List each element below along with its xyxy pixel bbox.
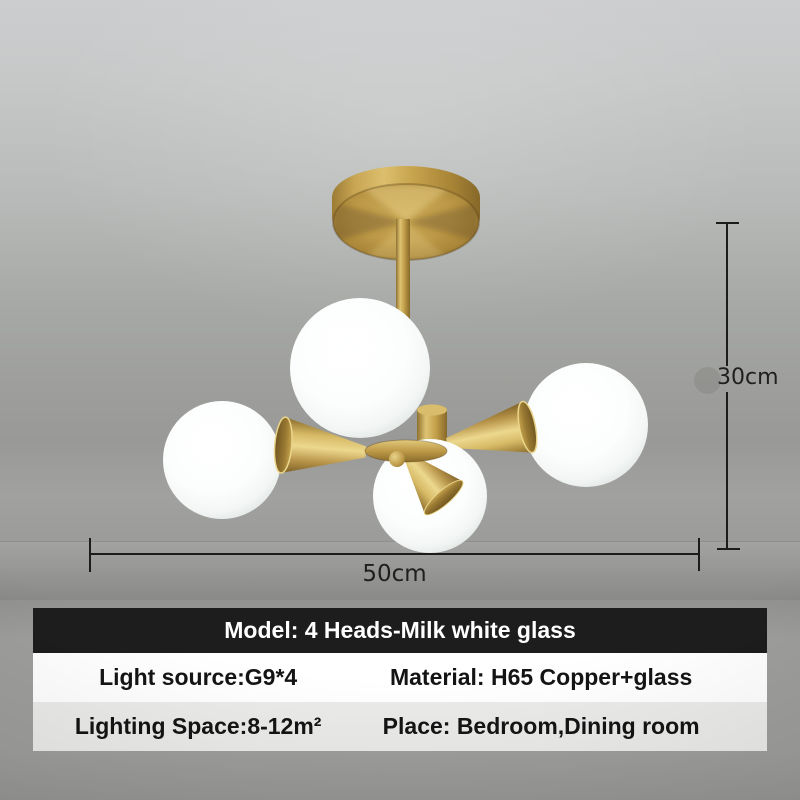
spec-table-row: Lighting Space:8-12m² Place: Bedroom,Din… [33, 702, 767, 751]
spec-lighting-space: Lighting Space:8-12m² [33, 713, 363, 740]
spec-table-row: Light source:G9*4 Material: H65 Copper+g… [33, 653, 767, 702]
height-dimension-line-lower [726, 392, 728, 549]
hub-disc [365, 440, 447, 462]
glass-globe-right [524, 363, 648, 487]
height-dimension-label: 30cm [717, 367, 779, 389]
glass-globe-left [163, 401, 281, 519]
height-dimension-tick-bottom [717, 548, 740, 550]
height-dimension-line-upper [726, 223, 728, 366]
width-dimension-line [90, 553, 699, 555]
product-photo-scene: 30cm 50cm Model: 4 Heads-Milk white glas… [0, 0, 800, 800]
glass-globe-top [290, 298, 430, 438]
height-dimension-tick-top [716, 222, 739, 224]
spec-material: Material: H65 Copper+glass [363, 664, 767, 691]
spec-light-source: Light source:G9*4 [33, 664, 363, 691]
width-dimension-label: 50cm [90, 562, 699, 586]
spec-place: Place: Bedroom,Dining room [363, 713, 767, 740]
spec-table: Model: 4 Heads-Milk white glass Light so… [33, 608, 767, 751]
spec-table-header: Model: 4 Heads-Milk white glass [33, 608, 767, 653]
hub-knob [389, 451, 405, 467]
